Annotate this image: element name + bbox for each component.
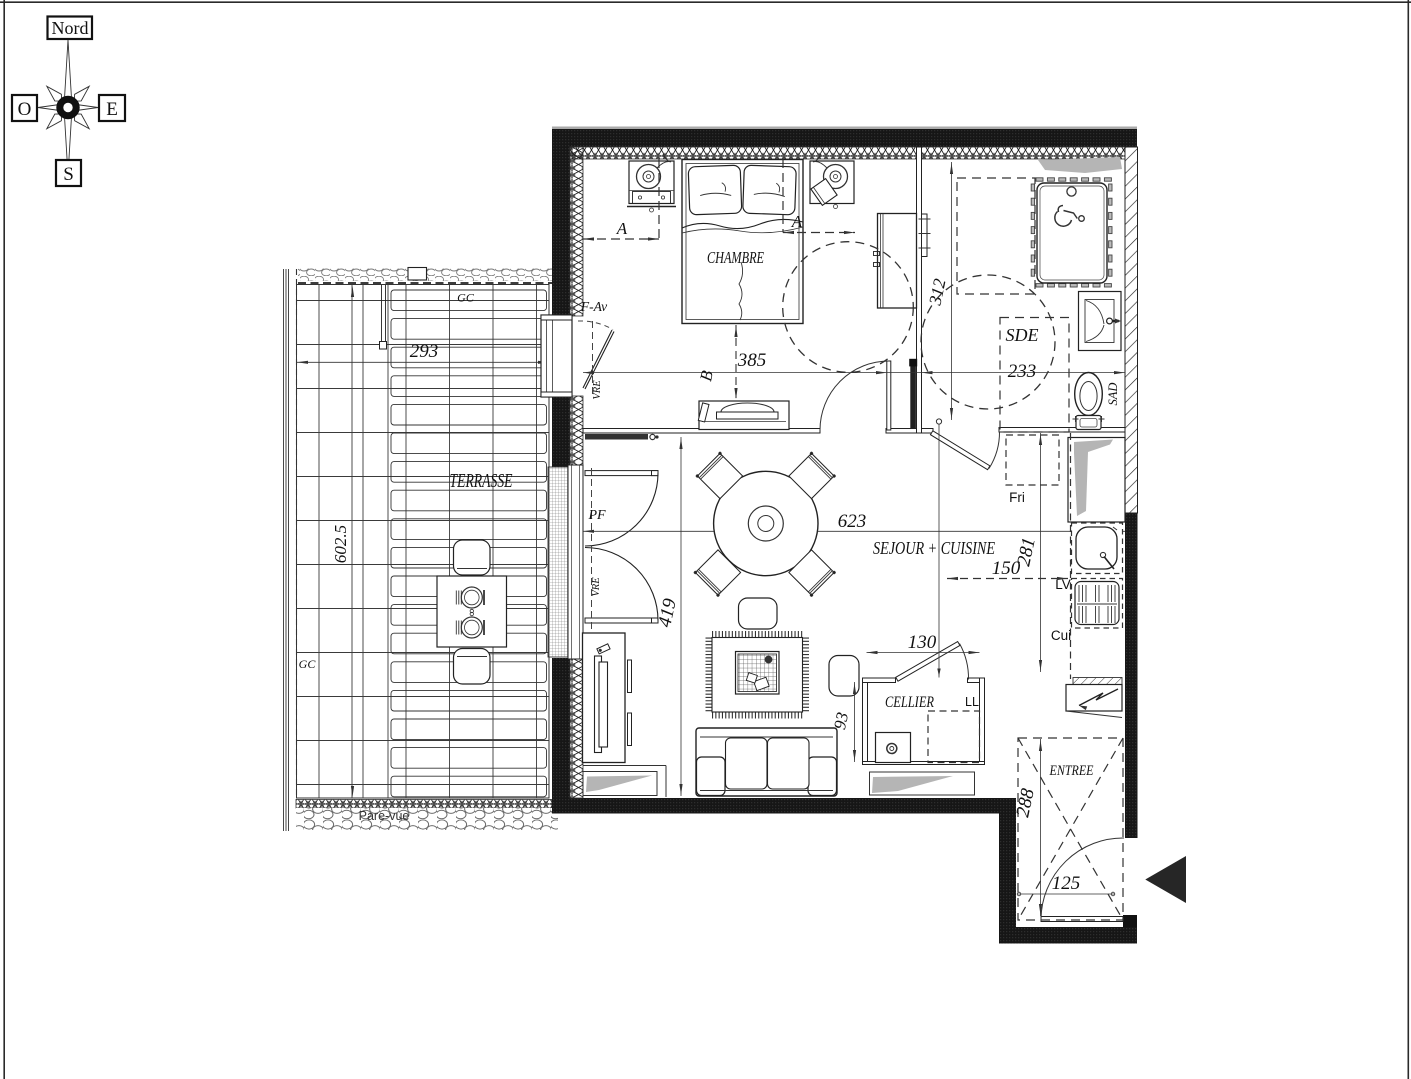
svg-text:CELLIER: CELLIER [885,694,934,711]
svg-text:GC: GC [457,291,475,305]
svg-text:O: O [18,99,32,120]
svg-text:150: 150 [992,558,1021,579]
svg-text:293: 293 [410,341,439,362]
svg-text:Cui: Cui [1051,628,1071,643]
svg-text:Nord: Nord [52,18,89,38]
svg-text:SAD: SAD [1106,383,1120,406]
svg-text:Pare-vue: Pare-vue [359,809,410,823]
svg-text:SDE: SDE [1006,325,1039,345]
svg-text:PF: PF [587,508,606,523]
svg-text:602.5: 602.5 [331,525,350,563]
svg-text:233: 233 [1008,361,1037,382]
svg-text:TERRASSE: TERRASSE [450,470,513,492]
svg-text:125: 125 [1052,873,1081,894]
svg-text:A: A [791,212,803,231]
svg-text:623: 623 [838,511,867,532]
svg-text:130: 130 [908,632,937,653]
svg-text:Fri: Fri [1009,490,1025,505]
svg-text:F-Av: F-Av [580,299,607,314]
svg-text:SEJOUR + CUISINE: SEJOUR + CUISINE [873,538,995,558]
svg-text:GC: GC [299,657,317,671]
svg-text:S: S [63,164,74,185]
svg-text:VRE: VRE [591,577,602,597]
svg-text:385: 385 [737,350,767,371]
svg-text:ENTREE: ENTREE [1049,763,1094,779]
svg-text:LL: LL [965,695,979,709]
svg-text:VRE: VRE [592,380,603,400]
svg-text:A: A [616,219,628,238]
svg-text:E: E [106,99,118,120]
svg-text:CHAMBRE: CHAMBRE [707,248,764,267]
